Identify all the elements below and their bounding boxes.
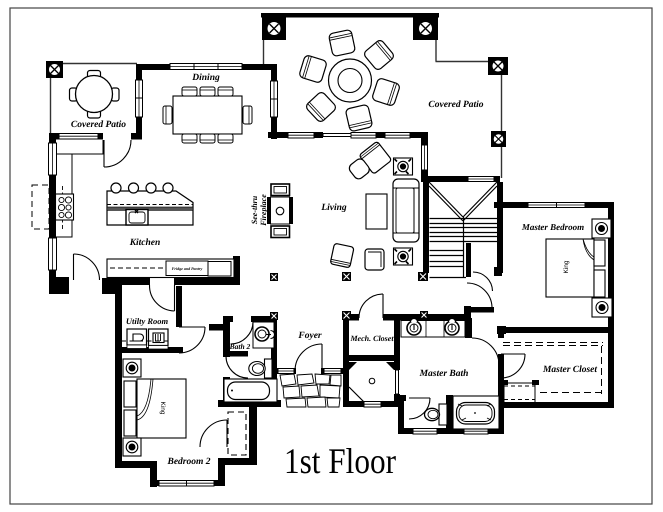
svg-text:Bedroom 2: Bedroom 2	[166, 457, 210, 467]
svg-text:Bath 2: Bath 2	[229, 342, 251, 351]
svg-text:Kitchen: Kitchen	[129, 238, 161, 248]
svg-text:Utilty Room: Utilty Room	[126, 316, 169, 326]
svg-text:Fridge and Pantry: Fridge and Pantry	[172, 266, 203, 271]
svg-text:Master Closet: Master Closet	[542, 365, 597, 375]
svg-text:Fireplace: Fireplace	[259, 194, 268, 227]
svg-text:Dining: Dining	[191, 73, 220, 83]
svg-text:Master Bath: Master Bath	[419, 369, 469, 379]
svg-text:See-thru: See-thru	[250, 195, 259, 224]
svg-text:Foyer: Foyer	[297, 331, 322, 341]
svg-text:1st Floor: 1st Floor	[284, 441, 396, 481]
svg-text:King: King	[563, 260, 570, 273]
svg-text:Covered Patio: Covered Patio	[428, 100, 483, 110]
svg-text:Living: Living	[320, 203, 347, 213]
svg-text:Master Bedroom: Master Bedroom	[521, 222, 584, 232]
svg-text:Mech. Closet: Mech. Closet	[349, 334, 394, 343]
svg-text:King: King	[159, 401, 166, 414]
svg-text:Covered Patio: Covered Patio	[71, 120, 126, 130]
